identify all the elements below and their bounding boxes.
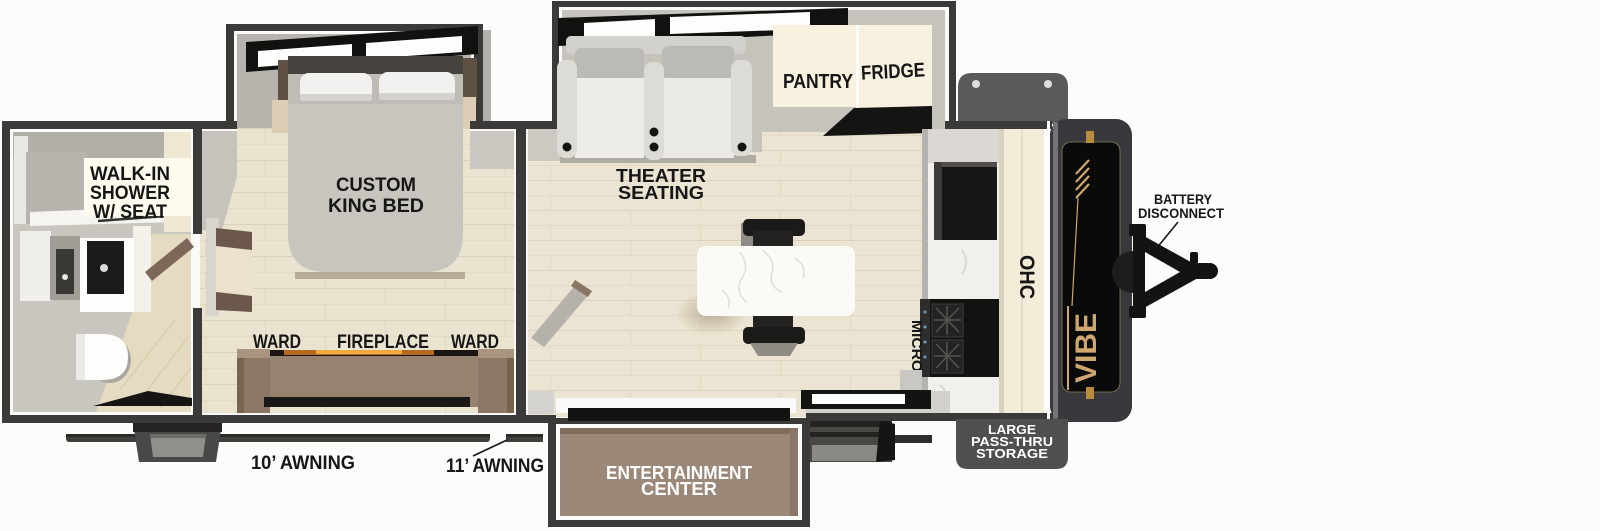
svg-text:BATTERY: BATTERY <box>1154 192 1212 207</box>
svg-text:CENTER: CENTER <box>641 478 717 499</box>
svg-text:W/ SEAT: W/ SEAT <box>93 202 167 223</box>
svg-text:OHC: OHC <box>1015 255 1038 299</box>
svg-text:WARD: WARD <box>253 332 301 353</box>
svg-text:11’ AWNING: 11’ AWNING <box>446 456 544 477</box>
svg-text:VIBE: VIBE <box>1070 313 1103 383</box>
svg-text:WALK-IN: WALK-IN <box>90 164 170 185</box>
svg-text:PANTRY: PANTRY <box>783 71 854 93</box>
svg-text:SEATING: SEATING <box>618 183 704 203</box>
svg-text:STORAGE: STORAGE <box>976 446 1048 461</box>
svg-text:10’ AWNING: 10’ AWNING <box>251 453 355 474</box>
svg-text:MICRO: MICRO <box>908 320 925 372</box>
svg-text:SHOWER: SHOWER <box>90 183 170 204</box>
svg-text:FIREPLACE: FIREPLACE <box>337 332 429 353</box>
svg-text:FRIDGE: FRIDGE <box>860 59 925 84</box>
svg-text:CUSTOM: CUSTOM <box>336 175 416 196</box>
svg-text:DISCONNECT: DISCONNECT <box>1138 206 1225 221</box>
svg-text:KING BED: KING BED <box>328 196 424 217</box>
svg-text:WARD: WARD <box>451 332 499 353</box>
